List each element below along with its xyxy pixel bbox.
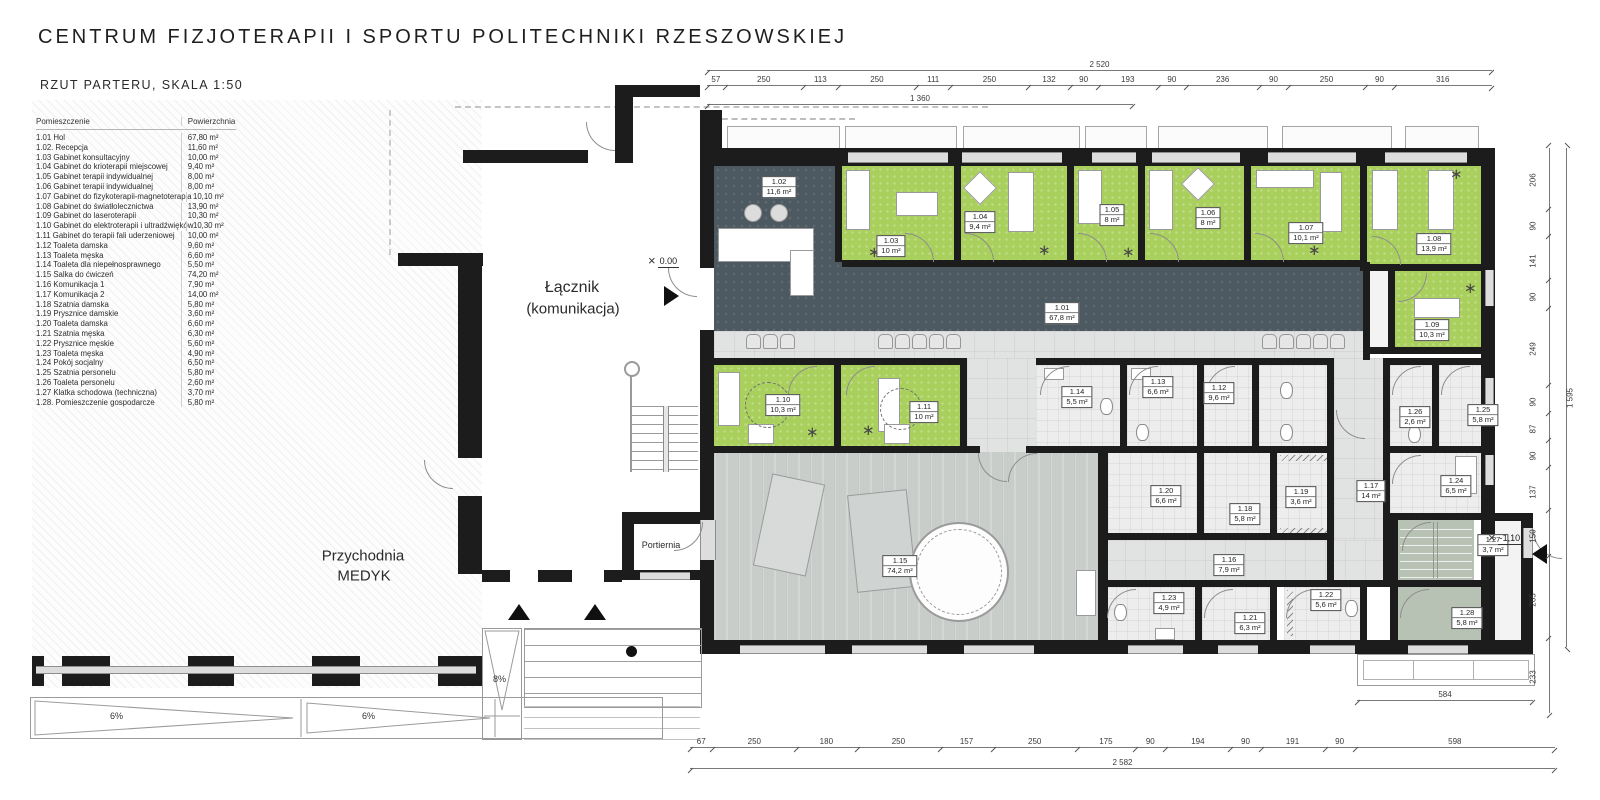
roof-outline-dashed: [455, 106, 988, 108]
legend-rows: 1.01 Hol67,80 m²1.02. Recepcja11,60 m²1.…: [36, 130, 236, 407]
dim-segment: 90: [1158, 74, 1186, 86]
ramp-percent-label: 6%: [110, 711, 123, 721]
window: [1485, 270, 1494, 306]
chair-icon: [895, 334, 910, 349]
window: [640, 572, 690, 580]
furniture: [846, 170, 870, 230]
legend-row: 1.08 Gabinet do światłolecznictwa13,90 m…: [36, 202, 236, 212]
plant-icon: ∗: [1038, 246, 1051, 256]
chair-icon: [1262, 334, 1277, 349]
room-label-1-19: 1.193,6 m²: [1285, 486, 1316, 508]
furniture: [1414, 298, 1460, 318]
wall: [714, 446, 960, 453]
planter-box: [1405, 126, 1479, 150]
room-label-1-02: 1.0211,6 m²: [762, 176, 797, 198]
window: [1218, 645, 1258, 654]
planter-box: [963, 126, 1080, 150]
level-mark-minus: × -1,10: [1488, 533, 1522, 545]
room-label-1-03: 1.0310 m²: [876, 235, 905, 257]
wall: [463, 150, 588, 163]
legend-header: Pomieszczenie Powierzchnia: [36, 117, 236, 130]
room-label-1-12: 1.129,6 m²: [1203, 382, 1234, 404]
wall: [1120, 365, 1127, 446]
legend-row: 1.04 Gabinet do krioterapii miejscowej9,…: [36, 162, 236, 172]
wall: [714, 358, 960, 365]
chair-icon: [929, 334, 944, 349]
dim-bottom-segments: 67250180250157250175901949019190598: [690, 736, 1555, 748]
connector-label-line1: Łącznik: [545, 279, 599, 297]
chair-icon: [1279, 334, 1294, 349]
dim-terrace: 584: [1357, 688, 1533, 701]
room-label-1-14: 1.145,5 m²: [1061, 386, 1092, 408]
room-label-1-23: 1.234,9 m²: [1153, 592, 1184, 614]
dim-segment: 57: [707, 74, 725, 86]
side-ramps: 6% 6%: [30, 697, 663, 744]
chair-icon: [746, 334, 761, 349]
dim-segment: 250: [857, 736, 941, 748]
window: [964, 645, 1034, 654]
chair-icon: [946, 334, 961, 349]
room-label-1-18: 1.185,8 m²: [1229, 503, 1260, 525]
furniture: [790, 250, 814, 296]
dim-right-segments: 2069014190249908790137150265233: [1538, 148, 1550, 713]
window: [1092, 152, 1136, 163]
planter-box: [727, 126, 840, 150]
room-label-1-10: 1.1010,3 m²: [765, 394, 800, 416]
level-zero-value: 0.00: [658, 256, 680, 268]
wall: [615, 85, 700, 97]
stool-icon: [770, 204, 788, 222]
room-label-1-21: 1.216,3 m²: [1234, 612, 1265, 634]
dim-segment: 236: [1186, 74, 1260, 86]
legend-row: 1.25 Szatnia personelu5,80 m²: [36, 368, 236, 378]
room-label-1-08: 1.0813,9 m²: [1416, 233, 1451, 255]
wall: [1481, 640, 1533, 654]
dim-right-total: 1 595: [1566, 148, 1579, 647]
dim-segment: 598: [1355, 736, 1555, 748]
toilet-icon: [1280, 424, 1293, 441]
room-label-1-13: 1.136,6 m²: [1142, 376, 1173, 398]
window: [36, 666, 476, 674]
shower-curtain-icon: [1280, 455, 1330, 461]
plant-icon: ∗: [1450, 170, 1463, 180]
entry-stairs: [524, 628, 702, 708]
wall: [1252, 365, 1259, 446]
dim-segment: 194: [1165, 736, 1230, 748]
wall: [1270, 452, 1277, 540]
connector-label-line2: (komunikacja): [526, 301, 619, 318]
wall: [458, 266, 482, 458]
dim-segment: 157: [940, 736, 993, 748]
legend-row: 1.19 Prysznice damskie3,60 m²: [36, 309, 236, 319]
legend-row: 1.26 Toaleta personelu2,60 m²: [36, 378, 236, 388]
room-label-1-11: 1.1110 m²: [909, 401, 938, 423]
room-label-1-06: 1.068 m²: [1196, 207, 1221, 229]
chair-icon: [780, 334, 795, 349]
legend-row: 1.17 Komunikacja 214,00 m²: [36, 290, 236, 300]
legend-row: 1.22 Prysznice męskie5,60 m²: [36, 339, 236, 349]
entrance-arrow-icon: [508, 604, 530, 620]
wall: [1390, 513, 1398, 654]
level-cross-icon: ×: [1488, 533, 1496, 543]
legend-row: 1.14 Toaleta dla niepełnosprawnego5,50 m…: [36, 260, 236, 270]
column-icon: [626, 646, 637, 657]
plant-icon: ∗: [1308, 246, 1321, 256]
window: [1408, 645, 1468, 654]
furniture: [718, 372, 740, 426]
furniture: [1256, 170, 1314, 188]
wall: [1098, 533, 1334, 540]
dim-segment: 141: [1538, 239, 1550, 283]
planter-box: [1282, 126, 1392, 150]
dim-segment: 113: [803, 74, 838, 86]
wall: [1360, 166, 1367, 271]
furniture: [1008, 172, 1034, 232]
legend-row: 1.16 Komunikacja 17,90 m²: [36, 280, 236, 290]
toilet-icon: [1136, 424, 1149, 441]
chair-icon: [1313, 334, 1328, 349]
stool-icon: [744, 204, 762, 222]
chair-icon: [878, 334, 893, 349]
furniture: [896, 192, 938, 216]
entrance-arrow-icon: [584, 604, 606, 620]
legend-row: 1.03 Gabinet konsultacyjny10,00 m²: [36, 153, 236, 163]
dim-segment: 250: [950, 74, 1028, 86]
plant-icon: ∗: [1464, 284, 1477, 294]
dim-segment: 233: [1538, 641, 1550, 713]
dim-segment: 191: [1261, 736, 1325, 748]
window: [1310, 645, 1355, 654]
wall: [1390, 446, 1481, 453]
wall: [398, 253, 483, 266]
wall: [1432, 365, 1439, 446]
window: [740, 645, 825, 654]
gym-circle: [909, 522, 1009, 622]
toilet-icon: [1100, 398, 1113, 415]
terrace: [1357, 654, 1535, 686]
connector-stairs: [630, 368, 698, 472]
dim-segment: 250: [1288, 74, 1366, 86]
chair-icon: [763, 334, 778, 349]
room-legend: Pomieszczenie Powierzchnia 1.01 Hol67,80…: [36, 117, 236, 407]
wall: [1388, 271, 1395, 347]
legend-row: 1.27 Klatka schodowa (techniczna)3,70 m²: [36, 388, 236, 398]
room-label-1-01: 1.0167,8 m²: [1044, 302, 1079, 324]
wall: [1197, 365, 1204, 446]
room-label-1-05: 1.058 m²: [1100, 204, 1125, 226]
toilet-icon: [1280, 382, 1293, 399]
level-mark-zero: × 0.00: [648, 256, 679, 268]
wall: [960, 358, 967, 453]
legend-row: 1.23 Toaleta męska4,90 m²: [36, 349, 236, 359]
legend-row: 1.11 Gabinet do terapii fali uderzeniowe…: [36, 231, 236, 241]
wall: [1383, 358, 1390, 580]
door-arc: [586, 122, 615, 151]
dim-segment: 150: [1538, 513, 1550, 559]
corridor-gym: [967, 358, 1036, 453]
dim-segment: 316: [1394, 74, 1493, 86]
legend-col-area: Powierzchnia: [181, 117, 236, 126]
dim-segment: 90: [1135, 736, 1165, 748]
dim-top-sub: 1 360: [707, 92, 1133, 105]
wall: [1495, 513, 1533, 521]
window: [1152, 152, 1240, 163]
room-label-1-28: 1.285,8 m²: [1451, 607, 1482, 629]
legend-row: 1.28. Pomieszczenie gospodarcze5,80 m²: [36, 398, 236, 408]
wall: [1360, 587, 1367, 640]
room-label-1-22: 1.225,6 m²: [1310, 589, 1341, 611]
wall: [1362, 264, 1481, 271]
room-label-1-04: 1.049,4 m²: [964, 211, 995, 233]
roof-outline-dashed: [389, 110, 391, 255]
page-title: CENTRUM FIZJOTERAPII I SPORTU POLITECHNI…: [38, 26, 847, 49]
roof-outline-dashed: [712, 118, 855, 120]
room-label-1-09: 1.0910,3 m²: [1414, 319, 1449, 341]
ramp-percent-label: 6%: [362, 711, 375, 721]
legend-row: 1.02. Recepcja11,60 m²: [36, 143, 236, 153]
wall: [834, 365, 841, 446]
ramp-percent-label: 8%: [493, 674, 506, 684]
legend-row: 1.10 Gabinet do elektroterapii i ultradź…: [36, 221, 236, 231]
wall: [954, 166, 961, 267]
page-subtitle: RZUT PARTERU, SKALA 1:50: [40, 78, 243, 92]
dim-segment: 265: [1538, 559, 1550, 641]
legend-row: 1.20 Toaleta damska6,60 m²: [36, 319, 236, 329]
dim-segment: 111: [916, 74, 951, 86]
chair-icon: [1330, 334, 1345, 349]
dim-segment: 250: [725, 74, 803, 86]
dim-segment: 90: [1070, 74, 1098, 86]
wall: [1370, 347, 1481, 354]
wall: [1098, 446, 1108, 654]
furniture: [1149, 170, 1173, 230]
wall: [1026, 446, 1036, 453]
room-label-1-26: 1.262,6 m²: [1399, 406, 1430, 428]
window: [1385, 152, 1467, 163]
wall: [604, 570, 622, 582]
room-label-1-24: 1.246,5 m²: [1440, 475, 1471, 497]
portiernia-label: Portiernia: [642, 540, 681, 550]
room-label-1-20: 1.206,6 m²: [1150, 485, 1181, 507]
wall: [1195, 587, 1202, 640]
wall: [1363, 262, 1370, 360]
window: [1485, 455, 1494, 485]
chair-icon: [1296, 334, 1311, 349]
wall: [458, 496, 482, 574]
furniture: [1076, 570, 1096, 616]
dim-segment: 250: [993, 736, 1077, 748]
entrance-arrow-icon: [664, 286, 679, 306]
furniture: [1155, 628, 1175, 640]
dim-segment: 67: [690, 736, 712, 748]
dim-bottom-total: 2 582: [690, 756, 1555, 769]
dim-segment: 90: [1365, 74, 1393, 86]
wall: [1138, 166, 1145, 267]
legend-row: 1.18 Szatnia damska5,80 m²: [36, 300, 236, 310]
floor-plan-canvas: CENTRUM FIZJOTERAPII I SPORTU POLITECHNI…: [0, 0, 1600, 800]
dim-top-total: 2 520: [707, 58, 1492, 71]
level-minus-value: -1,10: [1498, 533, 1523, 545]
medyk-label-line2: MEDYK: [337, 568, 390, 585]
legend-row: 1.12 Toaleta damska9,60 m²: [36, 241, 236, 251]
window: [962, 152, 1062, 163]
dim-segment: 206: [1538, 148, 1550, 212]
wall: [1390, 358, 1481, 365]
legend-row: 1.24 Pokój socjalny6,50 m²: [36, 358, 236, 368]
window: [1268, 152, 1356, 163]
room-label-1-17: 1.1714 m²: [1356, 480, 1385, 502]
window: [852, 645, 927, 654]
legend-row: 1.01 Hol67,80 m²: [36, 133, 236, 143]
gym-mat: [847, 489, 917, 593]
plant-icon: ∗: [806, 428, 819, 438]
dim-segment: 193: [1098, 74, 1158, 86]
window: [848, 152, 948, 163]
dim-segment: 250: [712, 736, 796, 748]
dim-segment: 250: [838, 74, 916, 86]
level-cross-icon: ×: [648, 256, 656, 266]
legend-row: 1.06 Gabinet terapii indywidualnej8,00 m…: [36, 182, 236, 192]
wall: [1036, 358, 1334, 365]
wall: [1197, 452, 1204, 540]
wc-stalls: [1259, 365, 1327, 446]
wall: [1098, 580, 1483, 587]
dim-segment: 90: [1325, 736, 1355, 748]
dim-segment: 132: [1028, 74, 1069, 86]
furniture: [1372, 170, 1398, 230]
plant-icon: ∗: [862, 426, 875, 436]
plant-icon: ∗: [1122, 248, 1135, 258]
wall: [1270, 587, 1277, 640]
legend-row: 1.09 Gabinet do laseroterapii10,30 m²: [36, 211, 236, 221]
wall: [1244, 166, 1251, 267]
dim-segment: 175: [1077, 736, 1136, 748]
legend-col-room: Pomieszczenie: [36, 117, 181, 126]
room-label-1-16: 1.167,9 m²: [1213, 554, 1244, 576]
legend-row: 1.13 Toaleta męska6,60 m²: [36, 251, 236, 261]
dim-segment: 137: [1538, 470, 1550, 512]
legend-row: 1.05 Gabinet terapii indywidualnej8,00 m…: [36, 172, 236, 182]
dim-segment: 90: [1259, 74, 1287, 86]
window: [1128, 645, 1183, 654]
stair-divider: [1433, 522, 1438, 578]
wall: [1036, 446, 1327, 453]
legend-row: 1.21 Szatnia męska6,30 m²: [36, 329, 236, 339]
wall: [700, 110, 722, 166]
dim-segment: 180: [796, 736, 856, 748]
planter-box: [845, 126, 957, 150]
wall: [1327, 358, 1334, 580]
legend-row: 1.07 Gabinet do fizykoterapii-magnetoter…: [36, 192, 236, 202]
planter-box: [1085, 126, 1147, 150]
wall: [700, 166, 714, 654]
wall: [960, 446, 980, 453]
dim-top-segments: 5725011325011125013290193902369025090316: [707, 74, 1492, 86]
room-label-1-25: 1.255,8 m²: [1467, 404, 1498, 426]
toilet-icon: [1345, 600, 1358, 617]
legend-row: 1.15 Salka do ćwiczeń74,20 m²: [36, 270, 236, 280]
dim-segment: 90: [1230, 736, 1260, 748]
wall: [1390, 513, 1481, 520]
furniture: [1078, 170, 1102, 224]
room-label-1-07: 1.0710,1 m²: [1288, 222, 1323, 244]
room-label-1-15: 1.1574,2 m²: [882, 555, 917, 577]
wall: [482, 570, 510, 582]
wall: [538, 570, 572, 582]
wall: [835, 166, 842, 262]
planter-box: [1158, 126, 1268, 150]
medyk-label-line1: Przychodnia: [322, 548, 405, 565]
hall-opening: [700, 268, 714, 330]
wall: [1067, 166, 1074, 267]
dim-segment: 249: [1538, 311, 1550, 388]
toilet-icon: [1408, 426, 1421, 443]
chair-icon: [912, 334, 927, 349]
